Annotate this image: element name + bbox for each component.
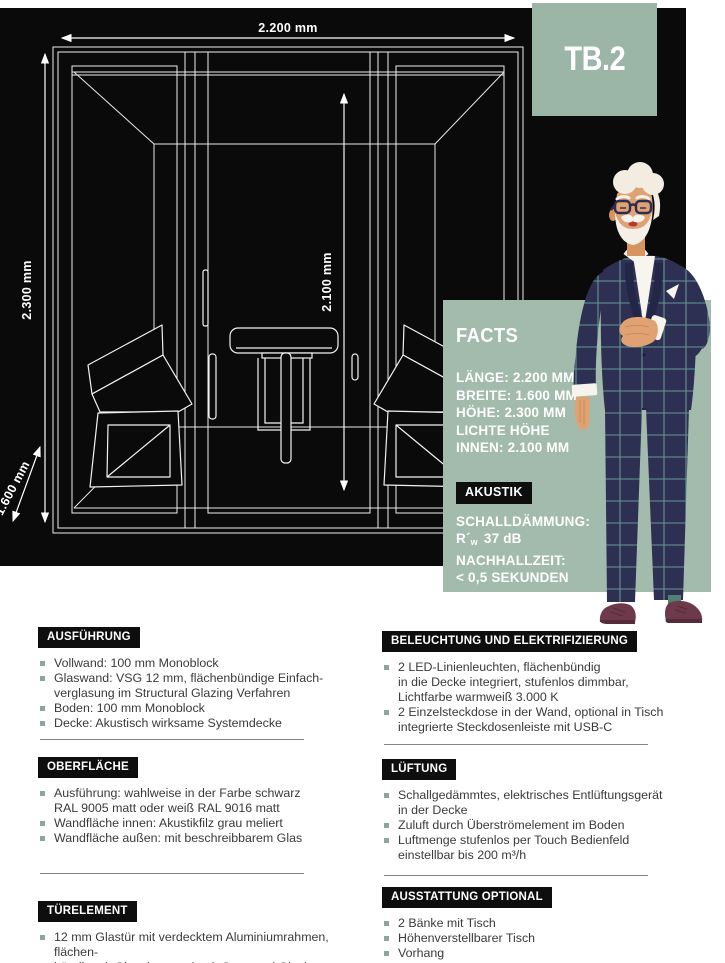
man-illustration	[565, 160, 723, 630]
section-divider	[40, 739, 304, 740]
spec-column-right: BELEUCHTUNG UND ELEKTRIFIZIERUNG 2 LED-L…	[382, 620, 714, 963]
spec-item: Vollwand: 100 mm Monoblock	[40, 656, 366, 671]
spec-sheet-page: 2.200 mm 2.300 mm 2.100 mm 1.600 mm TB.2…	[0, 0, 725, 963]
dimension-height: 2.300 mm	[20, 54, 45, 522]
section-ausfuehrung: AUSFÜHRUNG Vollwand: 100 mm Monoblock Gl…	[38, 627, 366, 731]
bullet-square	[40, 676, 45, 681]
spec-item: Wandfläche innen: Akustikfilz grau melie…	[40, 816, 366, 831]
spec-list: 12 mm Glastür mit verdecktem Aluminiumra…	[38, 930, 366, 963]
man-head	[609, 162, 664, 256]
akustik-heading: AKUSTIK	[465, 485, 523, 499]
bullet-square	[40, 706, 45, 711]
spec-list: 2 Bänke mit Tisch Höhenverstellbarer Tis…	[382, 916, 714, 961]
spec-list: Ausführung: wahlweise in der Farbe schwa…	[38, 786, 366, 846]
spec-item: 2 Bänke mit Tisch	[384, 916, 714, 931]
spec-item: Glaswand: VSG 12 mm, flächenbündige Einf…	[40, 671, 366, 701]
spec-column-left: AUSFÜHRUNG Vollwand: 100 mm Monoblock Gl…	[38, 620, 366, 963]
spec-item: 2 LED-Linienleuchten, flächenbündig in d…	[384, 660, 714, 705]
section-divider	[40, 873, 304, 874]
section-heading-badge: BELEUCHTUNG UND ELEKTRIFIZIERUNG	[382, 631, 637, 652]
section-divider	[384, 744, 648, 745]
man-left-hand	[575, 397, 590, 430]
section-tuerelement: TÜRELEMENT 12 mm Glastür mit verdecktem …	[38, 901, 366, 963]
bullet-square	[384, 951, 389, 956]
bullet-square	[384, 936, 389, 941]
spec-list: Schallgedämmtes, elektrisches Entlüftung…	[382, 788, 714, 863]
spec-item: Schallgedämmtes, elektrisches Entlüftung…	[384, 788, 714, 818]
spec-list: Vollwand: 100 mm Monoblock Glaswand: VSG…	[38, 656, 366, 731]
bullet-square	[384, 710, 389, 715]
model-label: TB.2	[564, 40, 625, 79]
section-heading-badge: LÜFTUNG	[382, 759, 456, 780]
dim-width-label: 2.200 mm	[258, 21, 317, 35]
dim-depth-label: 1.600 mm	[0, 459, 33, 518]
spec-list: 2 LED-Linienleuchten, flächenbündig in d…	[382, 660, 714, 735]
section-oberflaeche: OBERFLÄCHE Ausführung: wahlweise in der …	[38, 757, 366, 846]
model-badge: TB.2	[532, 3, 657, 116]
dimension-depth: 1.600 mm	[0, 447, 40, 521]
bullet-square	[40, 821, 45, 826]
section-heading-badge: AUSFÜHRUNG	[38, 627, 140, 648]
spec-item: 12 mm Glastür mit verdecktem Aluminiumra…	[40, 930, 366, 963]
bullet-square	[384, 838, 389, 843]
bullet-square	[384, 823, 389, 828]
bullet-square	[384, 793, 389, 798]
spec-item: Zuluft durch Überströmelement im Boden	[384, 818, 714, 833]
bullet-square	[40, 791, 45, 796]
section-heading-badge: OBERFLÄCHE	[38, 757, 138, 778]
bullet-square	[384, 921, 389, 926]
section-divider	[384, 875, 648, 876]
section-heading-badge: AUSSTATTUNG OPTIONAL	[382, 887, 552, 908]
section-lueftung: LÜFTUNG Schallgedämmtes, elektrisches En…	[382, 759, 714, 863]
bullet-square	[40, 836, 45, 841]
spec-item: Wandfläche außen: mit beschreibbarem Gla…	[40, 831, 366, 846]
akustik-heading-badge: AKUSTIK	[456, 482, 532, 504]
dim-height-label: 2.300 mm	[20, 260, 34, 319]
spec-item: Vorhang	[384, 946, 714, 961]
bullet-square	[384, 665, 389, 670]
dimension-inner-height: 2.100 mm	[320, 94, 344, 490]
dimension-width: 2.200 mm	[62, 21, 514, 38]
section-beleuchtung: BELEUCHTUNG UND ELEKTRIFIZIERUNG 2 LED-L…	[382, 631, 714, 735]
spec-item: Boden: 100 mm Monoblock	[40, 701, 366, 716]
spec-item: Luftmenge stufenlos per Touch Bedienfeld…	[384, 833, 714, 863]
section-heading-badge: TÜRELEMENT	[38, 901, 137, 922]
man-trousers	[605, 408, 689, 602]
left-bench	[88, 325, 192, 487]
bullet-square	[40, 661, 45, 666]
dim-inner-height-label: 2.100 mm	[320, 252, 334, 311]
bullet-square	[40, 721, 45, 726]
spec-item: Höhenverstellbarer Tisch	[384, 931, 714, 946]
bullet-square	[40, 935, 45, 940]
spec-item: Ausführung: wahlweise in der Farbe schwa…	[40, 786, 366, 816]
spec-item: Decke: Akustisch wirksame Systemdecke	[40, 716, 366, 731]
section-ausstattung-optional: AUSSTATTUNG OPTIONAL 2 Bänke mit Tisch H…	[382, 887, 714, 961]
table	[230, 328, 338, 463]
spec-item: 2 Einzelsteckdose in der Wand, optional …	[384, 705, 714, 735]
